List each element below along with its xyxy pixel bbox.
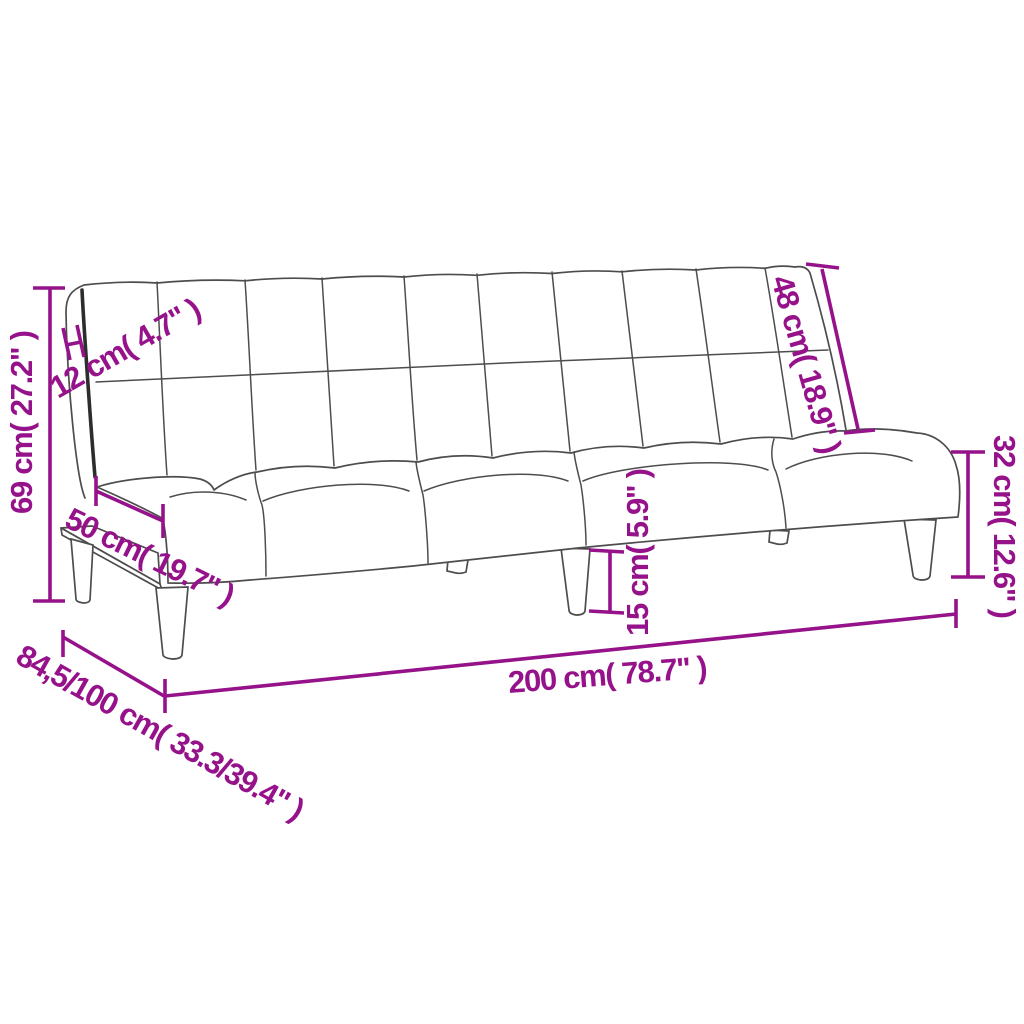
svg-text:15 cm( 5.9" ): 15 cm( 5.9" ) bbox=[620, 469, 655, 636]
svg-text:69 cm( 27.2" ): 69 cm( 27.2" ) bbox=[4, 331, 39, 514]
svg-text:32 cm( 12.6" ): 32 cm( 12.6" ) bbox=[987, 435, 1022, 618]
